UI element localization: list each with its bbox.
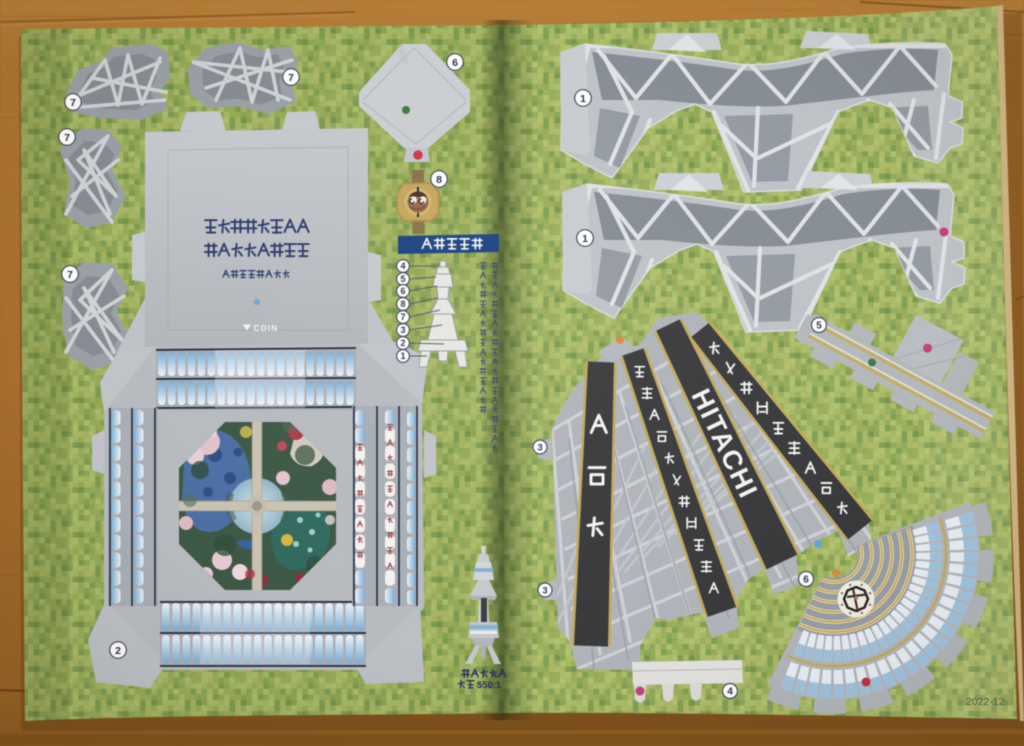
svg-text:1: 1: [400, 351, 405, 361]
svg-text:6: 6: [400, 286, 405, 296]
svg-text:8: 8: [436, 174, 442, 186]
svg-text:7: 7: [67, 269, 73, 281]
svg-text:3: 3: [542, 585, 547, 596]
svg-text:3: 3: [537, 442, 542, 453]
svg-text:1: 1: [580, 93, 586, 105]
svg-text:3: 3: [400, 325, 405, 335]
svg-text:2: 2: [115, 645, 121, 657]
svg-text:7: 7: [400, 312, 405, 322]
svg-text:8: 8: [400, 299, 405, 309]
svg-text:5: 5: [816, 321, 822, 332]
svg-text:4: 4: [400, 261, 405, 271]
svg-text:2: 2: [400, 338, 405, 348]
svg-text:6: 6: [803, 575, 809, 586]
svg-text:1: 1: [582, 233, 588, 245]
svg-text:7: 7: [64, 132, 70, 144]
svg-text:550:1: 550:1: [477, 680, 502, 691]
svg-text:2022-12: 2022-12: [966, 696, 1005, 708]
svg-text:COIN: COIN: [254, 324, 279, 333]
svg-text:7: 7: [70, 97, 76, 109]
svg-text:5: 5: [400, 274, 405, 284]
svg-text:7: 7: [288, 72, 294, 84]
svg-text:4: 4: [727, 687, 733, 698]
svg-text:6: 6: [452, 57, 458, 69]
